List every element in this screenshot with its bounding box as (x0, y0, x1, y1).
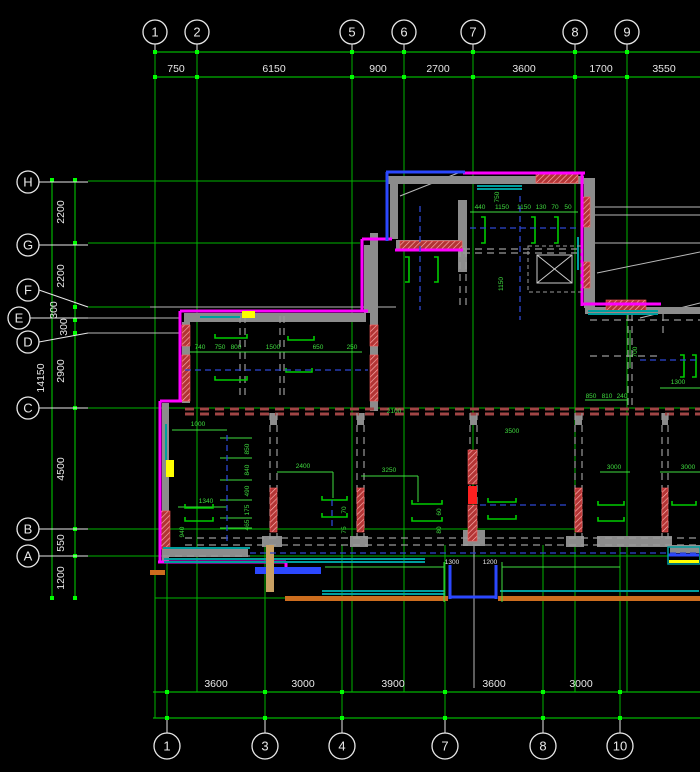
interior-dim-text: 750 (494, 191, 501, 202)
interior-dim-text: 175 (244, 504, 251, 515)
interior-dim-text: 1300 (445, 559, 460, 566)
interior-dim-text: 3250 (382, 467, 397, 474)
rebar-mark (692, 355, 696, 377)
dim-text: 3000 (291, 678, 315, 690)
grid-node-tick (73, 318, 77, 322)
rebar-mark (488, 515, 516, 519)
interior-dim-text: 440 (475, 204, 486, 211)
bottom-axis: 134781036003000390036003000 (153, 543, 700, 759)
dim-text: 750 (167, 63, 185, 75)
reference-line (597, 252, 700, 273)
interior-dim-text: 465 (244, 519, 251, 530)
grid-node-tick (195, 75, 199, 79)
interior-dim-text: 75 (341, 526, 348, 534)
interior-dim-text: 240 (617, 393, 628, 400)
dim-text: 3600 (482, 678, 506, 690)
rebar-mark (412, 500, 442, 504)
axis-bubble-label: 5 (348, 25, 355, 40)
yellow-block (166, 460, 174, 477)
axis-bubble-label: H (23, 175, 32, 190)
interior-dim-text: 750 (215, 344, 226, 351)
grid-node-tick (625, 75, 629, 79)
grid-node-tick (73, 241, 77, 245)
orange-block (498, 596, 700, 601)
grid-node-tick (50, 596, 54, 600)
grid-node-tick (618, 690, 622, 694)
red-wall-block (468, 486, 477, 504)
interior-dim-text: 800 (231, 344, 242, 351)
interior-dim-text: 3000 (681, 464, 696, 471)
wall-segment (458, 200, 467, 272)
tan-block (266, 545, 274, 592)
interior-dim-text: 650 (313, 344, 324, 351)
rebar-mark (185, 517, 213, 521)
shear-wall-hatch (583, 197, 590, 227)
axis-bubble-label: 2 (193, 25, 200, 40)
dim-text: 4500 (55, 457, 67, 481)
dim-text: 550 (55, 534, 67, 552)
orange-block (285, 596, 448, 601)
rebar-mark (488, 498, 516, 502)
interior-dim-text: 1300 (671, 379, 686, 386)
grid-node-tick (153, 50, 157, 54)
dim-text: 1700 (589, 63, 613, 75)
interior-dim-text: 810 (602, 393, 613, 400)
orange-block (150, 570, 165, 575)
rebar-mark (434, 257, 438, 282)
grid-node-tick (350, 50, 354, 54)
dim-text: 2700 (426, 63, 450, 75)
grid-node-tick (350, 75, 354, 79)
axis-bubble-label: A (24, 549, 33, 564)
interior-dim-text: 1000 (191, 421, 206, 428)
grid-node-tick (402, 50, 406, 54)
grid-node-tick (340, 690, 344, 694)
bubble-leader (39, 290, 88, 307)
floor-plan-canvas: 125678975061509002700360017003550HGFEDCB… (0, 0, 700, 772)
shear-wall-hatch (182, 355, 190, 401)
grid-node-tick (443, 716, 447, 720)
grid-node-tick (573, 50, 577, 54)
interior-dim-text: 840 (244, 464, 251, 475)
dim-text: 3600 (204, 678, 228, 690)
grid-node-tick (471, 50, 475, 54)
axis-bubble-label: B (24, 522, 33, 537)
rebar-layer (185, 217, 696, 521)
dim-text: 300 (58, 318, 70, 336)
axis-bubble-label: D (23, 335, 32, 350)
axis-bubble-label: 6 (400, 25, 407, 40)
dim-text: 1200 (55, 566, 67, 590)
rebar-mark (288, 336, 314, 340)
grid-node-tick (541, 690, 545, 694)
dim-text: 300 (48, 301, 60, 319)
interior-dim-text: 250 (347, 344, 358, 351)
axis-bubble-label: 8 (539, 739, 546, 754)
axis-bubble-label: F (24, 283, 32, 298)
interior-dim-text: 130 (536, 204, 547, 211)
shear-wall-hatch (468, 505, 477, 541)
shear-wall-hatch (370, 325, 378, 346)
rebar-mark (405, 257, 409, 282)
rebar-mark (531, 217, 535, 243)
dim-text: 6150 (262, 63, 286, 75)
grid-node-tick (50, 178, 54, 182)
grid-node-tick (165, 690, 169, 694)
axis-bubble-label: 3 (261, 739, 268, 754)
dim-text: 2900 (55, 359, 67, 383)
axis-bubble-label: 1 (163, 739, 170, 754)
interior-dim-text: 700 (632, 346, 639, 357)
rebar-mark (412, 517, 442, 521)
dim-text: 3600 (512, 63, 536, 75)
shear-wall-hatch (583, 262, 590, 288)
shear-wall-hatch (662, 488, 668, 532)
interior-dim-text: 1500 (266, 344, 281, 351)
dim-text: 3900 (381, 678, 405, 690)
interior-dim-text: 50 (564, 204, 572, 211)
interior-dim-text: 850 (586, 393, 597, 400)
dim-text: 3550 (652, 63, 676, 75)
axis-bubble-label: G (23, 238, 33, 253)
top-axis: 125678975061509002700360017003550 (143, 20, 700, 718)
wall-segment (390, 181, 398, 239)
left-axis: HGFEDCBA22002200300300290045005501200141… (8, 171, 700, 600)
interior-dim-text: 70 (551, 204, 559, 211)
shear-wall-hatch (357, 488, 364, 532)
grid-node-tick (165, 716, 169, 720)
interior-dim-text: 1340 (199, 498, 214, 505)
grid-node-tick (73, 331, 77, 335)
rebar-mark (554, 217, 558, 243)
overall-dim-text: 14150 (35, 363, 47, 392)
interior-dim-text: 3000 (607, 464, 622, 471)
interior-dim-text: 2400 (296, 463, 311, 470)
interior-dim-text: 740 (195, 344, 206, 351)
wall-segment (670, 545, 700, 553)
axis-bubble-label: 10 (613, 739, 627, 754)
grid-node-tick (195, 50, 199, 54)
rebar-mark (672, 501, 696, 505)
shear-wall-hatch (270, 488, 277, 532)
axis-bubble-label: 9 (623, 25, 630, 40)
dim-text: 2200 (55, 200, 67, 224)
yellow-block (669, 560, 699, 563)
rebar-mark (598, 517, 624, 521)
shear-wall-hatch (182, 325, 190, 346)
interior-dim-text: 60 (436, 508, 443, 516)
axis-bubble-label: E (15, 311, 24, 326)
rebar-mark (215, 376, 247, 380)
interior-dim-text: 70 (341, 506, 348, 514)
shear-wall-hatch (536, 174, 578, 183)
rebar-mark (215, 334, 247, 338)
axis-bubble-label: 1 (151, 25, 158, 40)
wall-segment (388, 176, 465, 184)
cad-drawing-frame: 125678975061509002700360017003550HGFEDCB… (0, 0, 700, 772)
grid-node-tick (73, 596, 77, 600)
grid-node-tick (625, 50, 629, 54)
interior-dim-text: 1150 (495, 204, 509, 211)
interior-dim-text: 940 (179, 526, 186, 537)
axis-bubble-label: 8 (571, 25, 578, 40)
blue-wall-block (255, 567, 321, 574)
interior-dim-text: 1150 (498, 277, 505, 291)
grid-node-tick (340, 716, 344, 720)
grid-node-tick (402, 75, 406, 79)
rebar-mark (481, 217, 485, 243)
grid-node-tick (443, 690, 447, 694)
outline-layer (158, 172, 699, 599)
grid-node-tick (263, 716, 267, 720)
shear-wall-hatch (161, 511, 170, 549)
grid-node-tick (618, 716, 622, 720)
axis-bubble-label: 7 (469, 25, 476, 40)
grid-node-tick (471, 75, 475, 79)
interior-dim-text: 2100 (387, 408, 402, 415)
shear-wall-hatch (370, 355, 378, 401)
grid-node-tick (573, 75, 577, 79)
dim-text: 900 (369, 63, 387, 75)
interior-dim-text: 1200 (483, 559, 498, 566)
dim-text: 3000 (569, 678, 593, 690)
dim-text: 2200 (55, 264, 67, 288)
grid-node-tick (73, 305, 77, 309)
grid-node-tick (73, 178, 77, 182)
grid-node-tick (263, 690, 267, 694)
interior-dim-text: 490 (244, 485, 251, 496)
interior-dim-text: 850 (244, 443, 251, 454)
rebar-mark (598, 501, 624, 505)
rebar-mark (322, 496, 347, 500)
interior-dim-text: 80 (436, 526, 443, 534)
shear-wall-hatch (468, 450, 477, 484)
axis-bubble-label: 7 (441, 739, 448, 754)
grid-node-tick (153, 75, 157, 79)
yellow-block (242, 311, 255, 318)
interior-dim-text: 1150 (517, 204, 531, 211)
interior-dim-text: 3500 (505, 428, 520, 435)
axis-bubble-label: C (23, 401, 32, 416)
shear-wall-hatch (575, 488, 582, 532)
axis-bubble-label: 4 (338, 739, 345, 754)
grid-node-tick (541, 716, 545, 720)
rebar-mark (680, 355, 684, 377)
